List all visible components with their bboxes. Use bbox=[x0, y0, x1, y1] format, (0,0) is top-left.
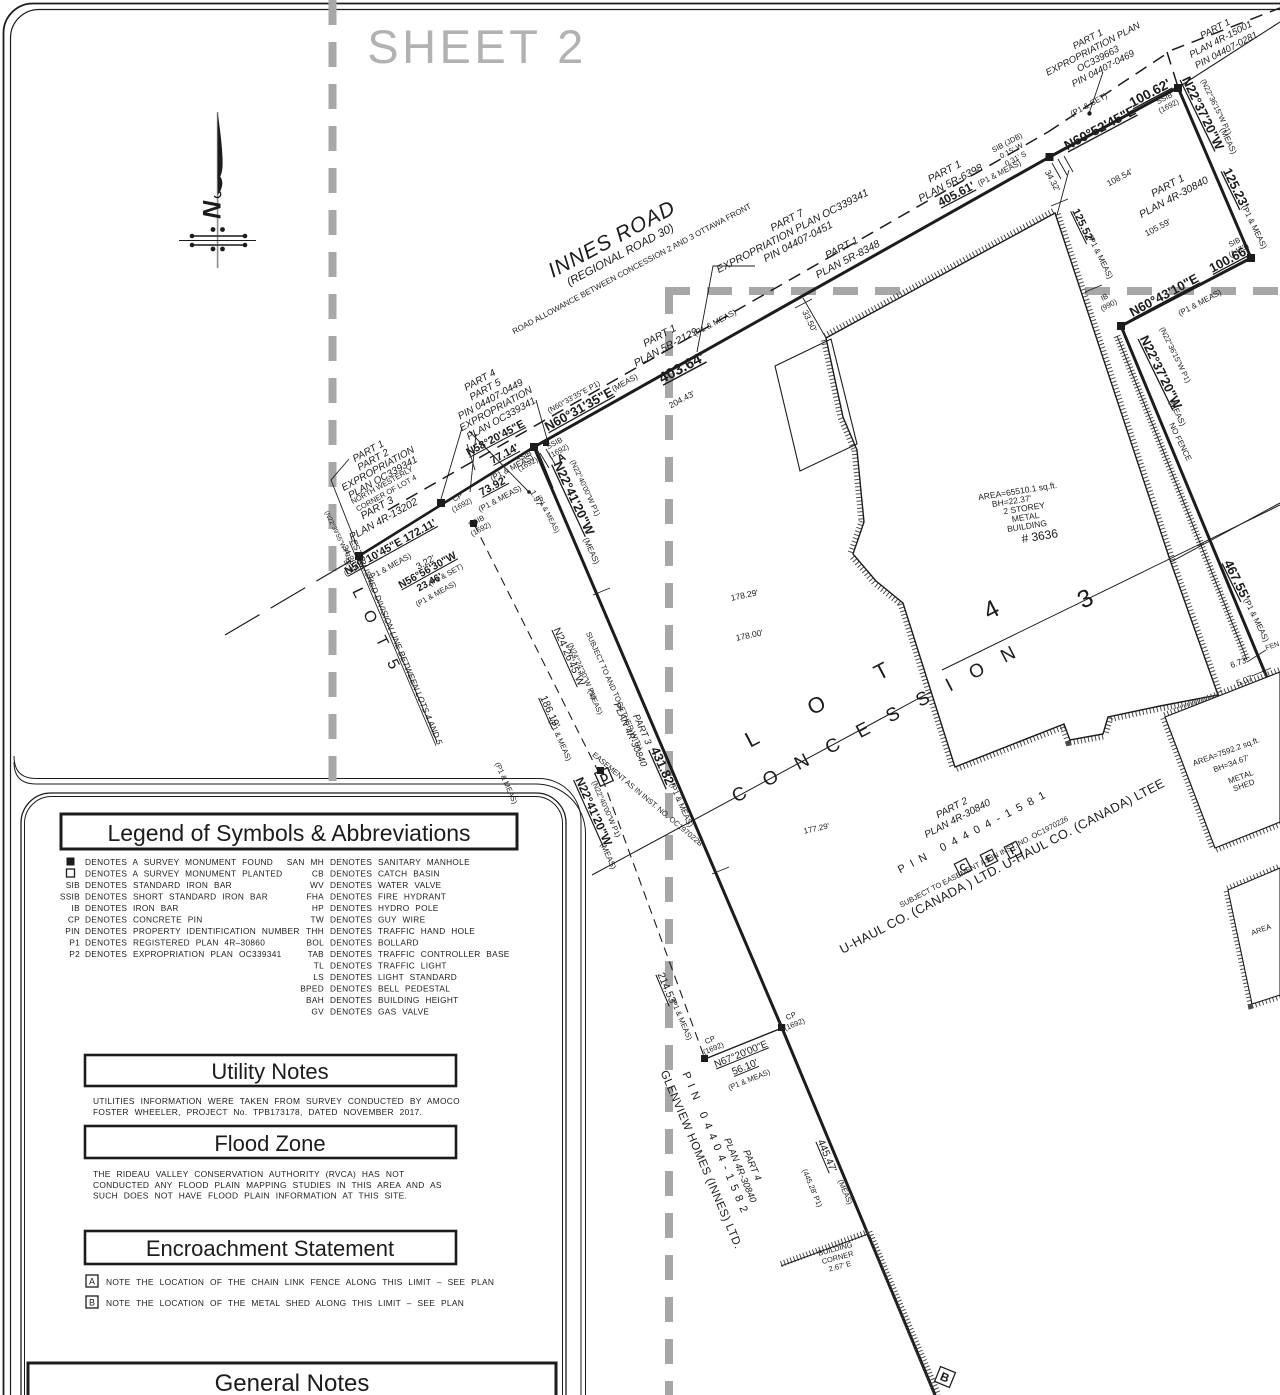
svg-text:GV: GV bbox=[311, 1007, 324, 1017]
svg-text:DENOTES WATER VALVE: DENOTES WATER VALVE bbox=[330, 880, 442, 890]
svg-text:THH: THH bbox=[306, 926, 324, 936]
svg-text:BAH: BAH bbox=[306, 995, 324, 1005]
svg-text:SIB: SIB bbox=[66, 880, 80, 890]
svg-text:SAN MH: SAN MH bbox=[287, 857, 324, 867]
svg-text:DENOTES BELL PEDESTAL: DENOTES BELL PEDESTAL bbox=[330, 984, 450, 994]
svg-text:U-HAUL CO. (CANADA ) LTD. U-HA: U-HAUL CO. (CANADA ) LTD. U-HAUL CO. (CA… bbox=[837, 775, 1167, 956]
svg-text:DENOTES PROPERTY IDENTIFICAT: DENOTES PROPERTY IDENTIFICATION NUMBER bbox=[85, 926, 300, 936]
svg-text:DENOTES BUILDING HEIGHT: DENOTES BUILDING HEIGHT bbox=[330, 995, 459, 1005]
svg-text:NO FENCE: NO FENCE bbox=[1167, 421, 1193, 462]
svg-text:DENOTES BOLLARD: DENOTES BOLLARD bbox=[330, 938, 419, 948]
svg-text:SHEET 2: SHEET 2 bbox=[367, 20, 587, 73]
svg-text:FOSTER WHEELER, PROJECT No.: FOSTER WHEELER, PROJECT No. TPB173178, D… bbox=[93, 1107, 422, 1117]
svg-text:DENOTES TRAFFIC HAND HOLE: DENOTES TRAFFIC HAND HOLE bbox=[330, 926, 475, 936]
svg-text:DENOTES EXPROPRIATION PLAN: DENOTES EXPROPRIATION PLAN OC339341 bbox=[85, 949, 282, 959]
svg-text:(P1 & MEAS): (P1 & MEAS) bbox=[1242, 597, 1271, 644]
svg-text:N: N bbox=[197, 200, 225, 219]
svg-text:DENOTES A SURVEY MONUMENT: DENOTES A SURVEY MONUMENT FOUND bbox=[85, 857, 273, 867]
svg-text:CP: CP bbox=[68, 915, 80, 925]
svg-text:HP: HP bbox=[312, 903, 324, 913]
svg-text:DENOTES REGISTERED PLAN 4R–: DENOTES REGISTERED PLAN 4R–30860 bbox=[85, 938, 265, 948]
svg-text:DENOTES SHORT STANDARD IRON: DENOTES SHORT STANDARD IRON BAR bbox=[85, 892, 268, 902]
svg-text:DENOTES LIGHT STANDARD: DENOTES LIGHT STANDARD bbox=[330, 972, 457, 982]
svg-text:Legend of Symbols & Abbreviati: Legend of Symbols & Abbreviations bbox=[107, 820, 470, 846]
svg-text:NOTE THE LOCATION OF THE: NOTE THE LOCATION OF THE CHAIN LINK FENC… bbox=[106, 1277, 494, 1287]
svg-text:BPED: BPED bbox=[300, 984, 324, 994]
svg-text:(P1 & MEAS): (P1 & MEAS) bbox=[493, 761, 520, 806]
svg-text:Encroachment Statement: Encroachment Statement bbox=[146, 1236, 394, 1261]
svg-text:DENOTES CONCRETE PIN: DENOTES CONCRETE PIN bbox=[85, 915, 203, 925]
svg-text:CB: CB bbox=[312, 869, 324, 879]
svg-text:(MEAS): (MEAS) bbox=[598, 841, 618, 871]
svg-text:(MEAS): (MEAS) bbox=[586, 688, 605, 716]
svg-text:B: B bbox=[89, 1298, 95, 1308]
svg-text:Flood Zone: Flood Zone bbox=[214, 1131, 325, 1156]
svg-text:P1: P1 bbox=[69, 938, 80, 948]
svg-text:TAB: TAB bbox=[308, 949, 325, 959]
svg-text:DENOTES TRAFFIC CONTROLLER: DENOTES TRAFFIC CONTROLLER BASE bbox=[330, 949, 510, 959]
svg-text:TW: TW bbox=[311, 915, 325, 925]
svg-text:DENOTES HYDRO POLE: DENOTES HYDRO POLE bbox=[330, 903, 439, 913]
svg-text:FEN: FEN bbox=[1265, 641, 1280, 652]
svg-text:DENOTES IRON BAR: DENOTES IRON BAR bbox=[85, 903, 179, 913]
svg-text:General Notes: General Notes bbox=[215, 1370, 370, 1395]
svg-text:SSIB: SSIB bbox=[60, 892, 80, 902]
svg-text:(445.28' P1): (445.28' P1) bbox=[800, 1168, 824, 1209]
svg-text:DENOTES CATCH BASIN: DENOTES CATCH BASIN bbox=[330, 869, 440, 879]
svg-text:108.54': 108.54' bbox=[1105, 166, 1134, 188]
svg-text:DENOTES A SURVEY MONUMENT: DENOTES A SURVEY MONUMENT PLANTED bbox=[85, 869, 282, 879]
svg-text:(P1 & MEAS): (P1 & MEAS) bbox=[692, 307, 739, 337]
svg-text:UTILITIES INFORMATION WERE: UTILITIES INFORMATION WERE TAKEN FROM SU… bbox=[93, 1096, 460, 1106]
svg-text:Utility Notes: Utility Notes bbox=[211, 1059, 328, 1084]
svg-text:(P1 & MEAS): (P1 & MEAS) bbox=[1086, 234, 1115, 281]
svg-text:34.32': 34.32' bbox=[1043, 168, 1063, 193]
svg-text:DENOTES FIRE HYDRANT: DENOTES FIRE HYDRANT bbox=[330, 892, 446, 902]
svg-text:6.73': 6.73' bbox=[1229, 654, 1250, 670]
svg-text:177.29': 177.29' bbox=[803, 821, 831, 835]
svg-text:DENOTES TRAFFIC LIGHT: DENOTES TRAFFIC LIGHT bbox=[330, 961, 447, 971]
svg-text:DENOTES STANDARD IRON BAR: DENOTES STANDARD IRON BAR bbox=[85, 880, 232, 890]
svg-text:BOL: BOL bbox=[306, 938, 324, 948]
svg-text:DENOTES SANITARY MANHOLE: DENOTES SANITARY MANHOLE bbox=[330, 857, 470, 867]
svg-text:178.00': 178.00' bbox=[735, 627, 764, 643]
svg-text:NOTE THE LOCATION OF THE: NOTE THE LOCATION OF THE METAL SHED ALON… bbox=[106, 1298, 464, 1308]
svg-text:178.29': 178.29' bbox=[730, 587, 759, 603]
svg-text:DENOTES GAS VALVE: DENOTES GAS VALVE bbox=[330, 1007, 429, 1017]
svg-text:N22°37'20"W: N22°37'20"W bbox=[1137, 333, 1186, 412]
svg-text:A: A bbox=[89, 1277, 95, 1287]
svg-text:DENOTES GUY WIRE: DENOTES GUY WIRE bbox=[330, 915, 426, 925]
svg-text:P2: P2 bbox=[69, 949, 80, 959]
svg-text:CONDUCTED ANY FLOOD PLAIN: CONDUCTED ANY FLOOD PLAIN MAPPING STUDIE… bbox=[93, 1180, 442, 1190]
svg-text:WV: WV bbox=[310, 880, 324, 890]
svg-text:LS: LS bbox=[313, 972, 324, 982]
svg-text:FHA: FHA bbox=[307, 892, 325, 902]
svg-text:TL: TL bbox=[314, 961, 324, 971]
svg-text:THE RIDEAU VALLEY CONSERVAT: THE RIDEAU VALLEY CONSERVATION AUTHORITY… bbox=[93, 1169, 404, 1179]
svg-text:IB: IB bbox=[72, 903, 81, 913]
svg-text:105.59': 105.59' bbox=[1143, 216, 1172, 238]
svg-text:SUCH DOES NOT HAVE FLOOD: SUCH DOES NOT HAVE FLOOD PLAIN INFORMATI… bbox=[93, 1191, 407, 1201]
svg-text:PIN: PIN bbox=[65, 926, 80, 936]
